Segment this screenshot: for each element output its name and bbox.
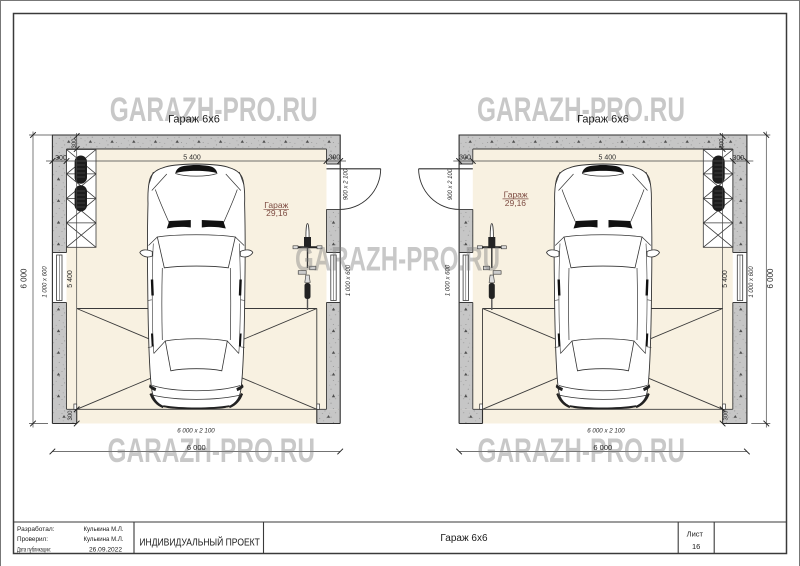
- svg-text:5 400: 5 400: [599, 154, 617, 161]
- svg-text:300: 300: [68, 410, 74, 421]
- svg-text:GARAZH-PRO.RU: GARAZH-PRO.RU: [295, 241, 500, 279]
- svg-text:300: 300: [723, 410, 729, 421]
- svg-text:29,16: 29,16: [266, 208, 288, 218]
- svg-text:GARAZH-PRO.RU: GARAZH-PRO.RU: [478, 432, 686, 470]
- svg-text:6 000 х 2 100: 6 000 х 2 100: [177, 427, 215, 434]
- svg-text:ИНДИВИДУАЛЬНЫЙ ПРОЕКТ: ИНДИВИДУАЛЬНЫЙ ПРОЕКТ: [139, 536, 260, 549]
- svg-text:300: 300: [459, 154, 471, 161]
- svg-text:6 000 х 2 100: 6 000 х 2 100: [587, 427, 625, 434]
- svg-text:Лист: Лист: [687, 530, 704, 539]
- svg-text:300: 300: [328, 154, 340, 161]
- svg-text:1 000 х 600: 1 000 х 600: [446, 264, 452, 296]
- svg-text:Гараж 6х6: Гараж 6х6: [577, 114, 629, 126]
- svg-text:Кулькина М.Л.: Кулькина М.Л.: [84, 526, 124, 533]
- svg-text:6 000: 6 000: [187, 443, 206, 452]
- svg-text:Гараж 6х6: Гараж 6х6: [440, 533, 488, 544]
- svg-text:1 000 х 600: 1 000 х 600: [346, 264, 352, 296]
- svg-text:Разработал:: Разработал:: [17, 525, 55, 533]
- svg-text:29,16: 29,16: [505, 198, 527, 208]
- svg-text:GARAZH-PRO.RU: GARAZH-PRO.RU: [108, 432, 316, 470]
- svg-text:900 х 2 100: 900 х 2 100: [343, 168, 349, 200]
- svg-text:Проверил:: Проверил:: [17, 536, 48, 543]
- svg-text:6 000: 6 000: [593, 443, 612, 452]
- svg-text:26.09.2022: 26.09.2022: [89, 546, 123, 553]
- svg-text:300: 300: [732, 155, 744, 162]
- svg-text:300: 300: [72, 138, 78, 149]
- svg-text:1 000 х 600: 1 000 х 600: [42, 266, 48, 298]
- svg-text:Гараж 6х6: Гараж 6х6: [168, 114, 220, 126]
- svg-text:Дата публикации:: Дата публикации:: [17, 545, 51, 553]
- svg-text:16: 16: [692, 542, 700, 551]
- svg-text:6 000: 6 000: [20, 268, 29, 289]
- svg-text:5 400: 5 400: [722, 270, 729, 288]
- svg-text:1 000 х 600: 1 000 х 600: [749, 266, 755, 298]
- svg-text:300: 300: [55, 155, 67, 162]
- svg-text:6 000: 6 000: [766, 268, 775, 289]
- svg-text:5 400: 5 400: [183, 154, 201, 161]
- svg-text:900 х 2 100: 900 х 2 100: [448, 168, 454, 200]
- svg-text:300: 300: [719, 138, 725, 149]
- svg-text:5 400: 5 400: [67, 270, 74, 288]
- svg-text:Кулькина М.Л.: Кулькина М.Л.: [84, 536, 124, 543]
